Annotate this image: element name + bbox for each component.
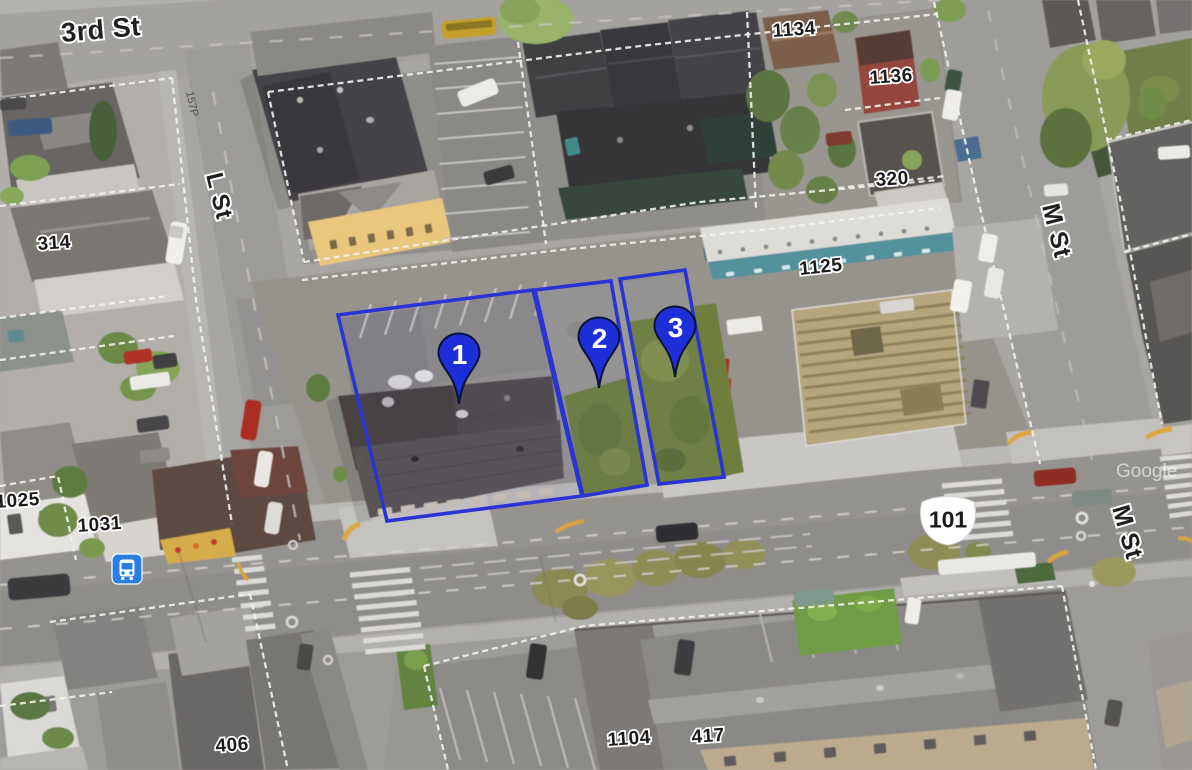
svg-text:1031: 1031	[77, 513, 123, 537]
svg-text:1104: 1104	[607, 727, 652, 751]
svg-text:3: 3	[668, 312, 684, 343]
svg-text:2: 2	[592, 323, 608, 354]
svg-text:406: 406	[215, 734, 250, 757]
svg-text:417: 417	[691, 725, 726, 748]
svg-text:1134: 1134	[772, 18, 817, 42]
svg-text:1125: 1125	[798, 255, 843, 280]
svg-text:1: 1	[452, 339, 468, 370]
svg-text:Google: Google	[1116, 461, 1177, 482]
svg-text:1136: 1136	[869, 65, 914, 89]
svg-text:320: 320	[875, 168, 910, 191]
svg-text:1025: 1025	[0, 489, 41, 513]
svg-text:314: 314	[37, 232, 72, 255]
svg-text:101: 101	[929, 507, 968, 533]
